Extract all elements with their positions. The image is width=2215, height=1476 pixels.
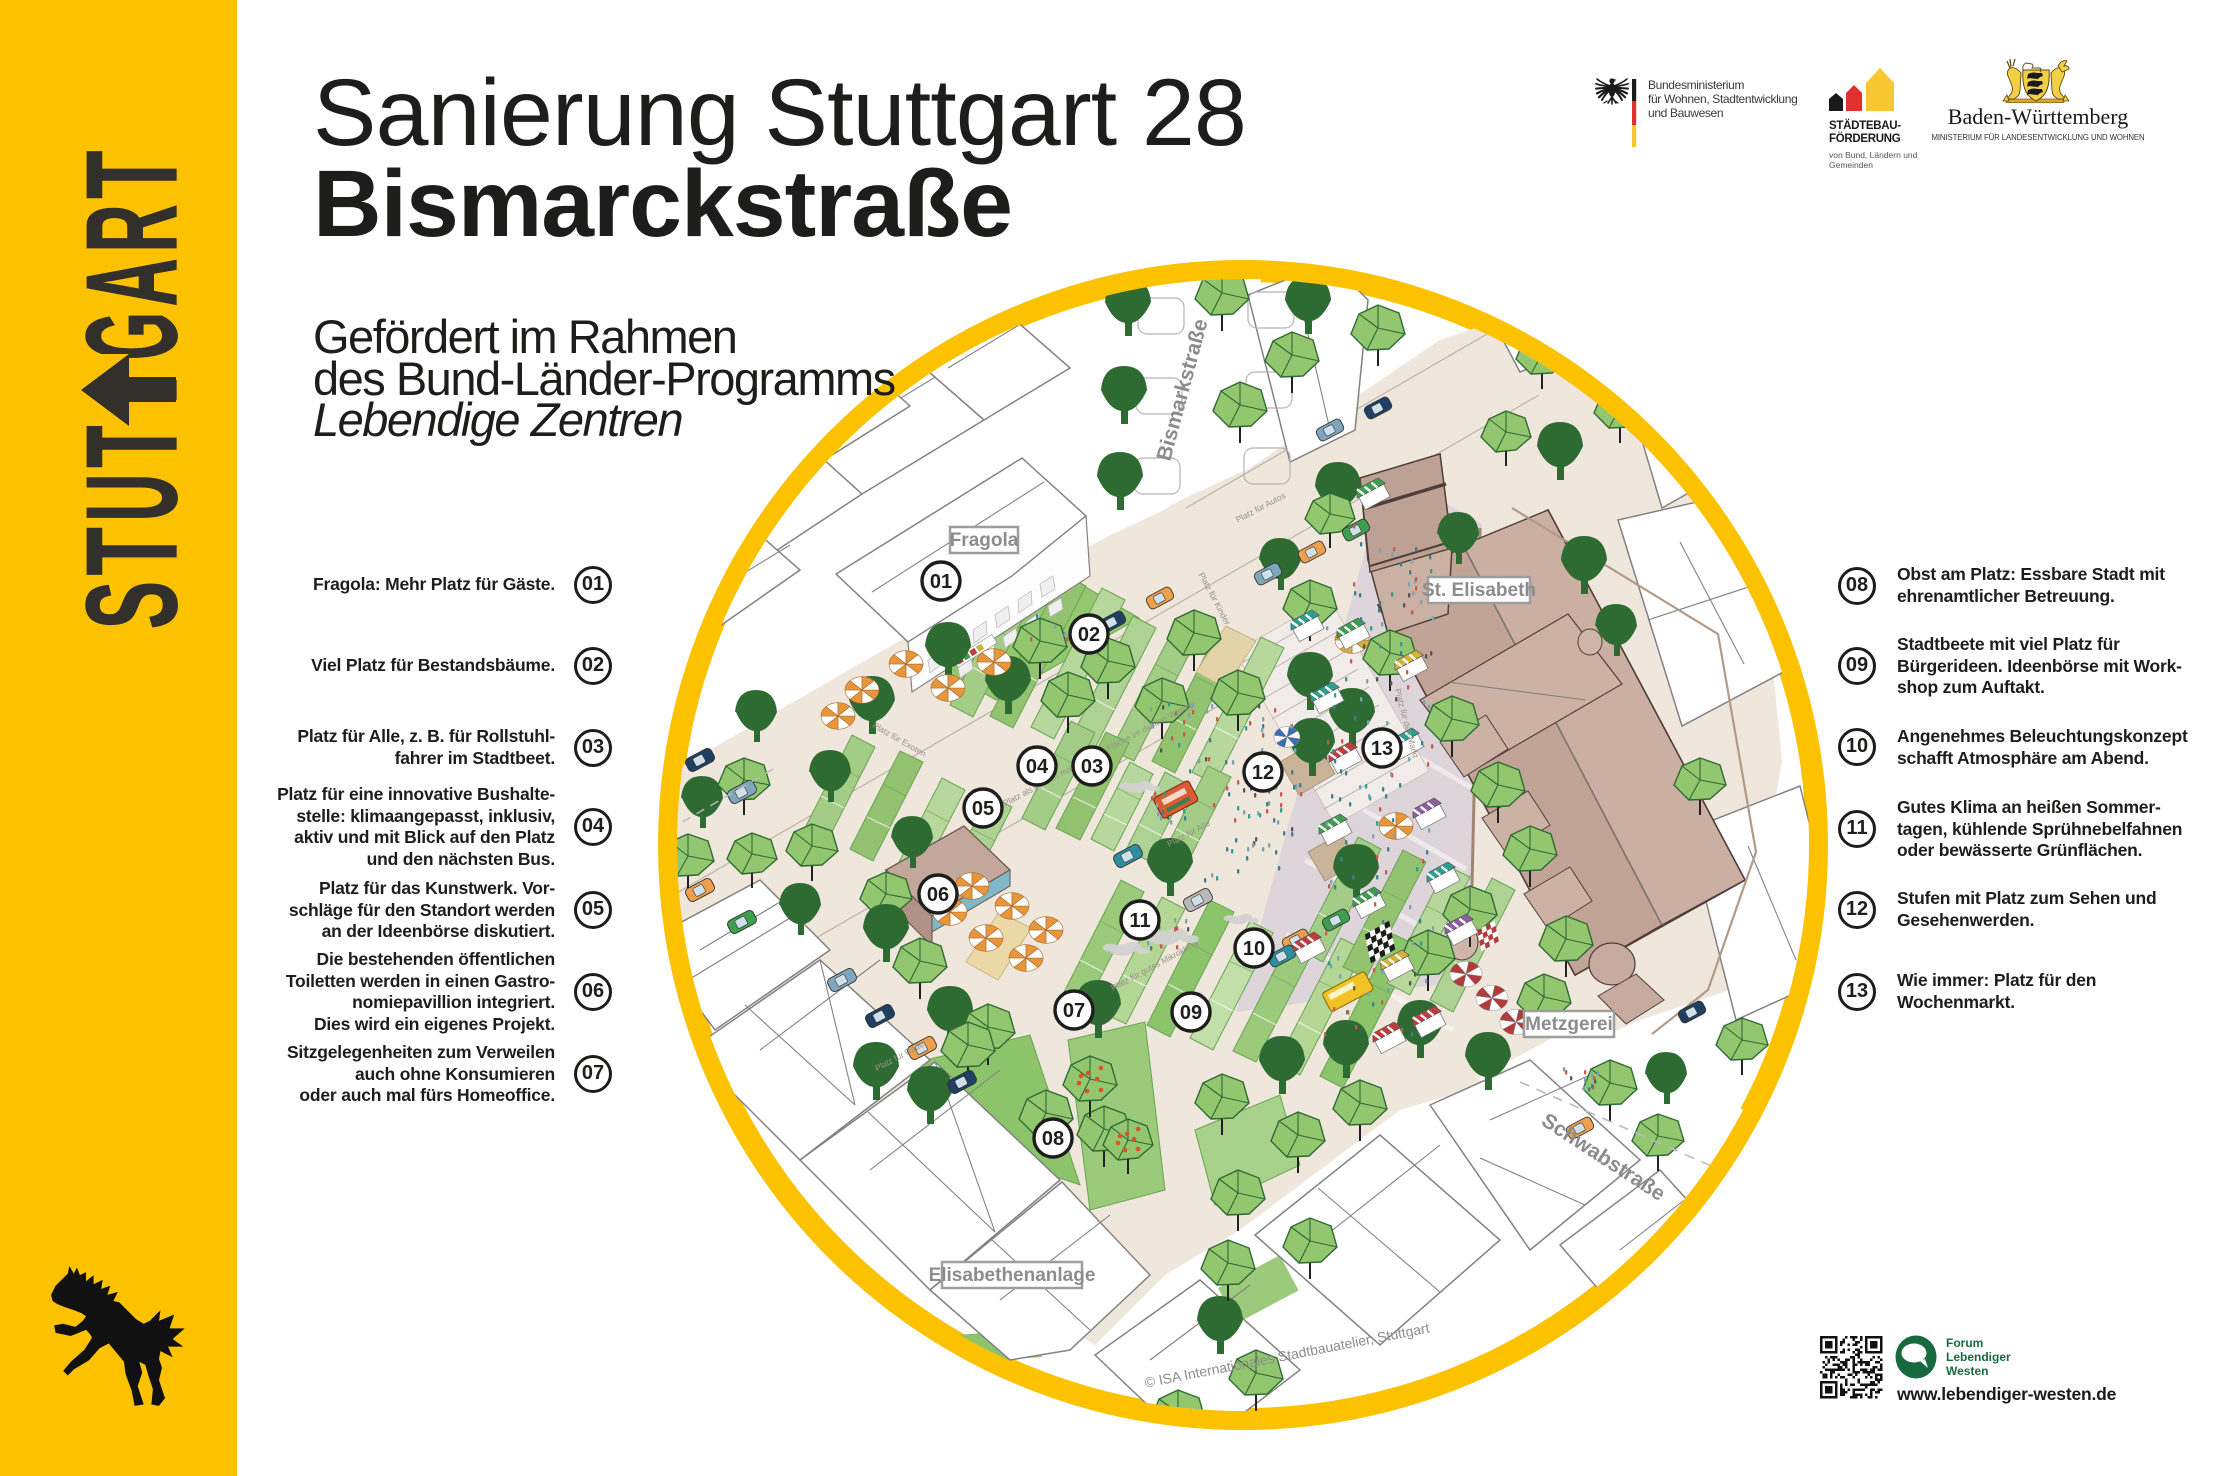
- svg-text:U: U: [60, 474, 204, 522]
- svg-text:Forum: Forum: [1946, 1336, 1983, 1350]
- svg-text:von Bund, Ländern und: von Bund, Ländern und: [1829, 150, 1918, 160]
- svg-text:13: 13: [1371, 738, 1393, 760]
- svg-text:Gemeinden: Gemeinden: [1829, 160, 1873, 170]
- svg-text:T: T: [60, 527, 204, 575]
- svg-text:und Bauwesen: und Bauwesen: [1648, 106, 1723, 120]
- svg-text:G: G: [60, 312, 204, 360]
- svg-text:Westen: Westen: [1946, 1364, 1988, 1378]
- svg-text:R: R: [60, 205, 204, 253]
- svg-text:T: T: [60, 420, 204, 468]
- svg-text:St. Elisabeth: St. Elisabeth: [1422, 580, 1536, 601]
- svg-text:für Wohnen, Stadtentwicklung: für Wohnen, Stadtentwicklung: [1648, 92, 1797, 106]
- svg-text:S: S: [60, 581, 204, 629]
- svg-text:T: T: [60, 151, 204, 199]
- svg-text:11: 11: [1129, 910, 1150, 932]
- svg-text:www.lebendiger-westen.de: www.lebendiger-westen.de: [1896, 1384, 2117, 1404]
- svg-text:12: 12: [1252, 762, 1274, 784]
- svg-text:05: 05: [972, 798, 994, 820]
- svg-text:Baden-Württemberg: Baden-Württemberg: [1948, 104, 2128, 129]
- svg-text:06: 06: [927, 884, 949, 906]
- svg-text:10: 10: [1243, 938, 1265, 960]
- svg-text:Lebendiger: Lebendiger: [1946, 1350, 2011, 1364]
- svg-text:Elisabethenanlage: Elisabethenanlage: [929, 1265, 1096, 1286]
- svg-text:04: 04: [1026, 756, 1049, 778]
- svg-text:01: 01: [930, 571, 952, 593]
- svg-text:08: 08: [1042, 1128, 1064, 1150]
- svg-text:FÖRDERUNG: FÖRDERUNG: [1829, 132, 1901, 145]
- svg-text:A: A: [60, 258, 204, 306]
- svg-text:MINISTERIUM FÜR LANDESENTWICKL: MINISTERIUM FÜR LANDESENTWICKLUNG UND WO…: [1931, 133, 2144, 142]
- svg-text:07: 07: [1063, 1000, 1085, 1022]
- svg-text:02: 02: [1078, 624, 1100, 646]
- svg-text:Fragola: Fragola: [950, 530, 1019, 551]
- svg-text:03: 03: [1081, 756, 1103, 778]
- svg-text:Metzgerei: Metzgerei: [1525, 1014, 1613, 1035]
- svg-text:Bundesministerium: Bundesministerium: [1648, 78, 1744, 92]
- svg-text:09: 09: [1180, 1002, 1202, 1024]
- svg-text:STÄDTEBAU-: STÄDTEBAU-: [1829, 119, 1901, 132]
